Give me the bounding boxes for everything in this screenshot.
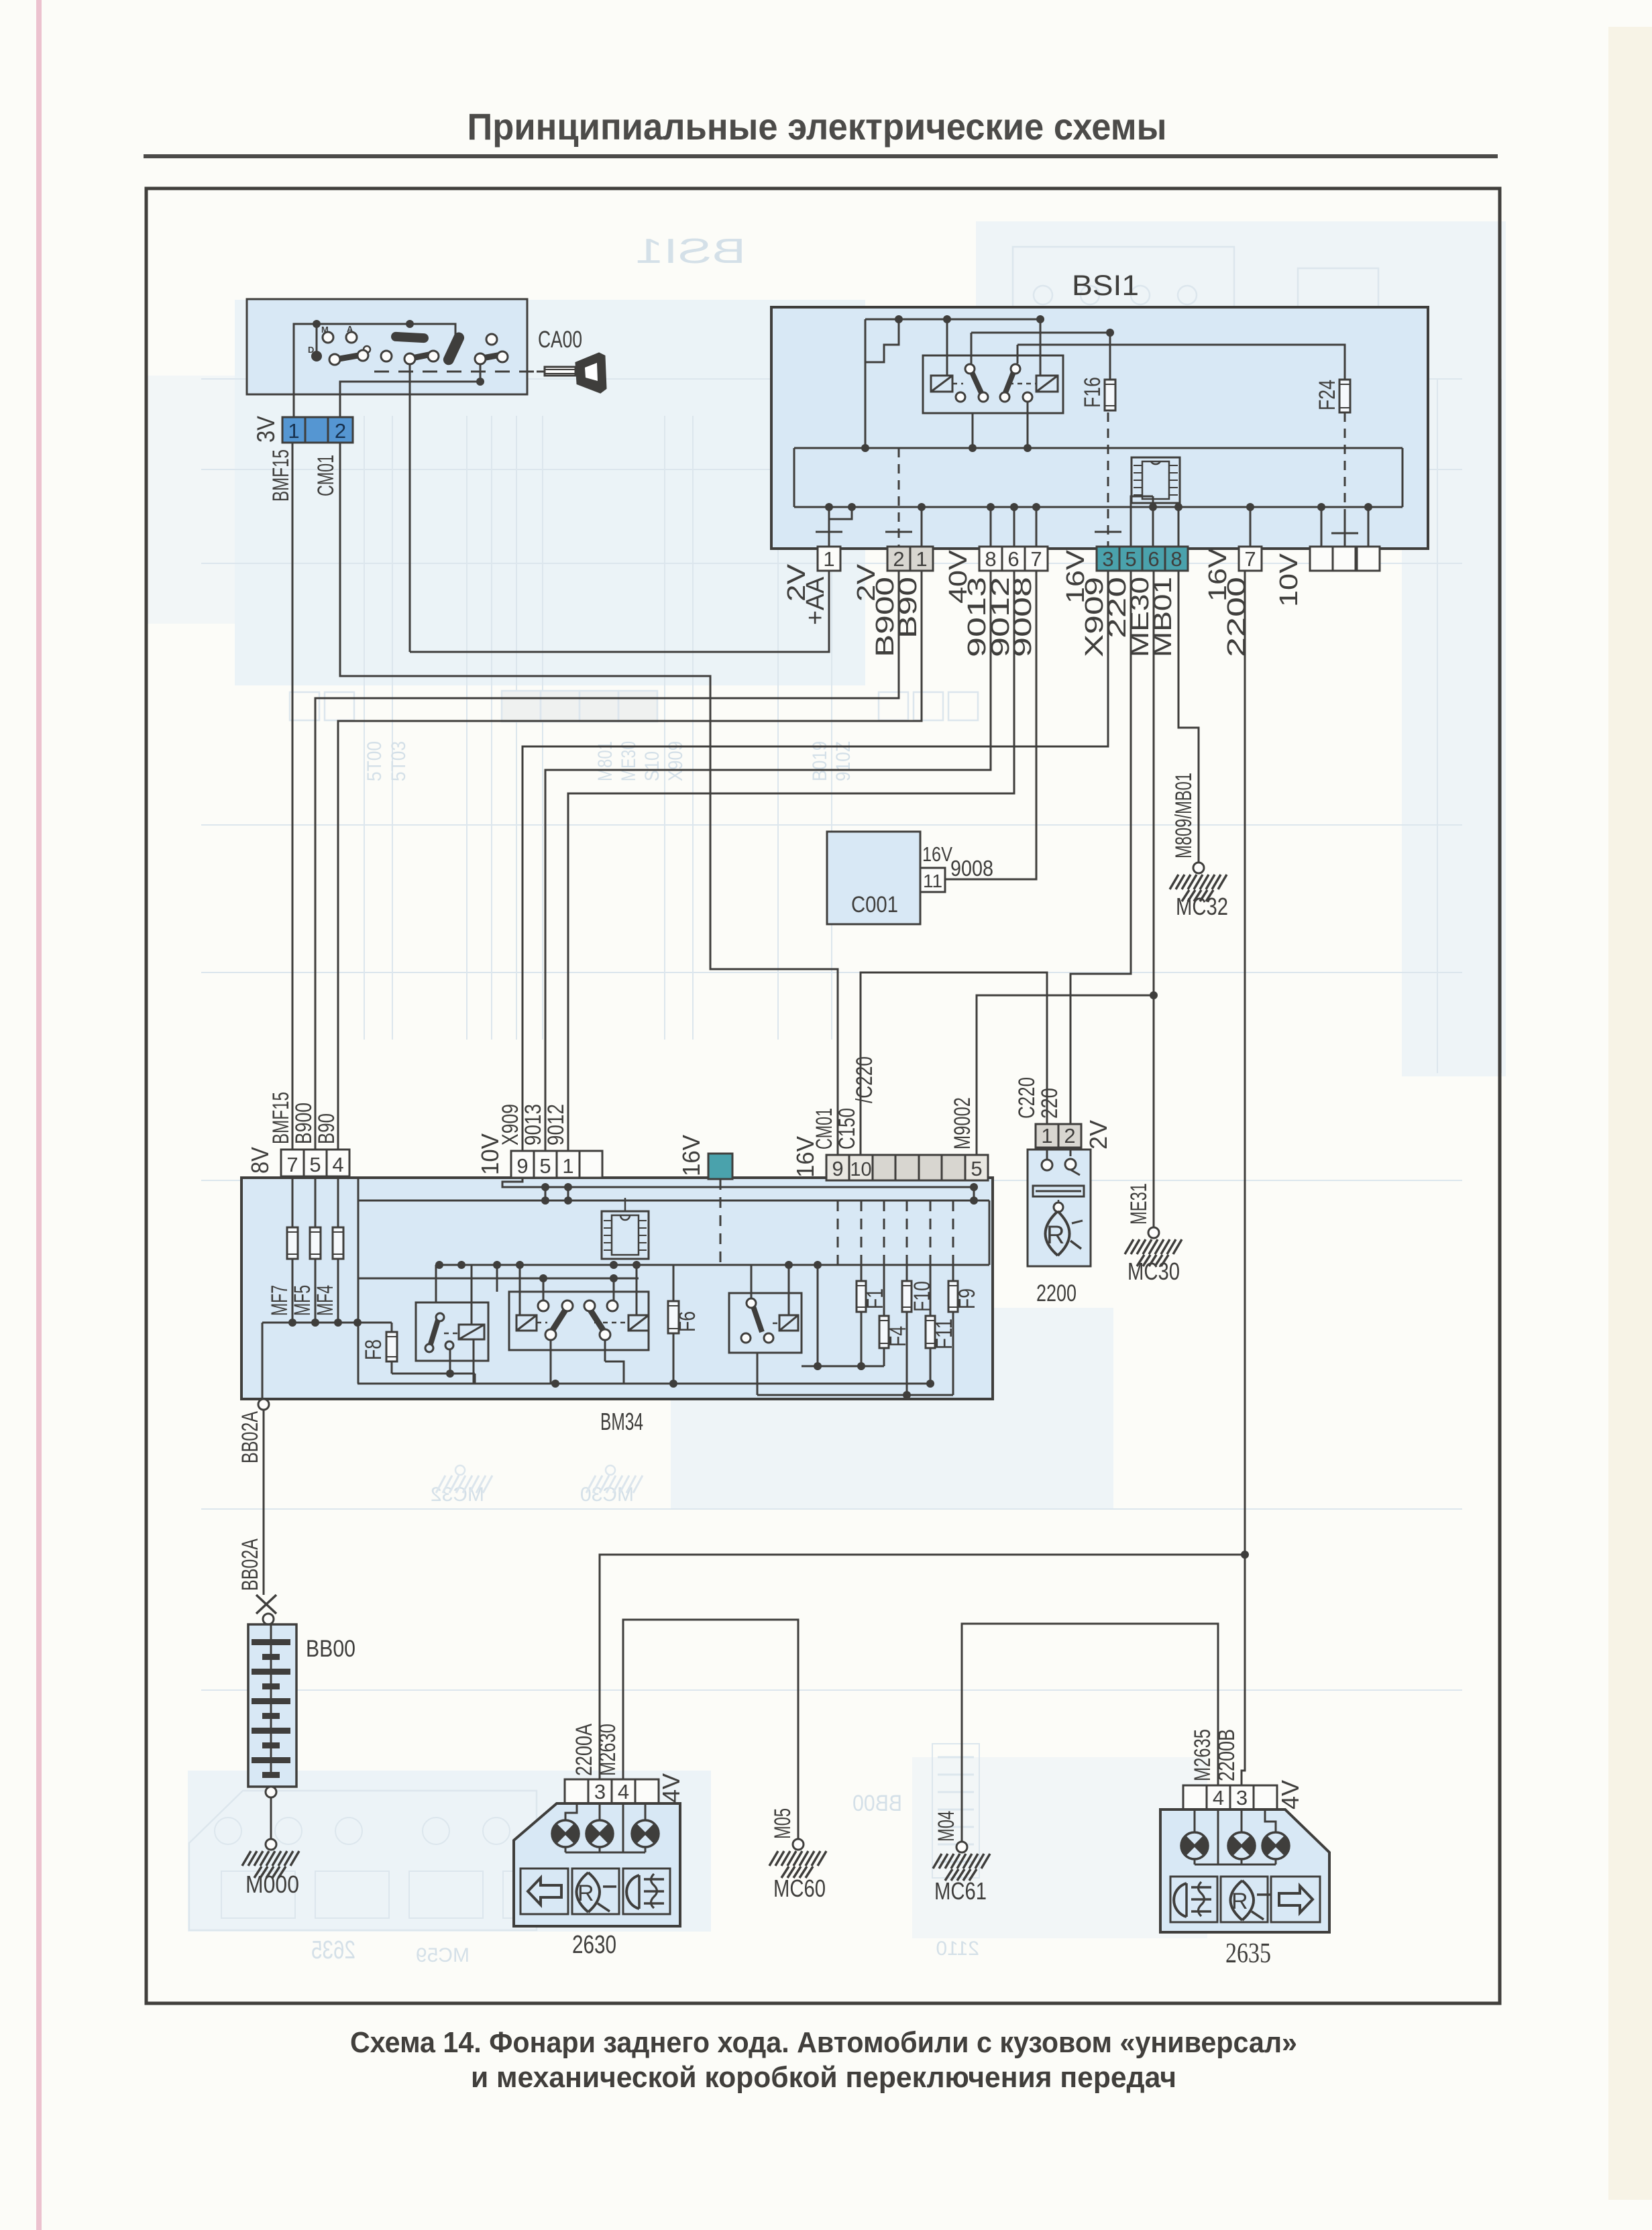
svg-text:7: 7 xyxy=(1244,547,1256,571)
svg-text:1: 1 xyxy=(916,547,927,571)
svg-text:BSI1: BSI1 xyxy=(1072,270,1139,302)
svg-text:BSI1: BSI1 xyxy=(635,232,746,271)
svg-text:CM01: CM01 xyxy=(812,1108,837,1150)
svg-text:B900: B900 xyxy=(291,1103,317,1144)
svg-text:1: 1 xyxy=(288,419,299,443)
svg-text:MC60: MC60 xyxy=(773,1875,826,1902)
svg-text:F16: F16 xyxy=(1080,377,1105,408)
svg-text:3: 3 xyxy=(1102,547,1113,571)
svg-text:+AA: +AA xyxy=(802,576,830,625)
svg-text:MC32: MC32 xyxy=(1176,893,1228,920)
svg-text:2635: 2635 xyxy=(1225,1938,1271,1969)
svg-text:MF4: MF4 xyxy=(313,1285,338,1316)
svg-text:11: 11 xyxy=(923,871,942,891)
svg-text:M809/MB01: M809/MB01 xyxy=(1171,773,1197,858)
svg-text:9008: 9008 xyxy=(950,856,993,881)
svg-text:2110: 2110 xyxy=(936,1938,979,1960)
svg-text:BB02A: BB02A xyxy=(237,1411,263,1463)
svg-text:MC61: MC61 xyxy=(934,1877,987,1905)
svg-text:CA00: CA00 xyxy=(538,327,582,353)
svg-text:220: 220 xyxy=(1037,1088,1062,1119)
svg-text:9008: 9008 xyxy=(1009,577,1037,657)
svg-text:9012: 9012 xyxy=(543,1104,569,1146)
svg-text:2200B: 2200B xyxy=(1214,1729,1240,1781)
svg-text:M04: M04 xyxy=(934,1811,959,1842)
svg-text:5T03: 5T03 xyxy=(388,741,410,781)
svg-text:4V: 4V xyxy=(657,1773,685,1803)
svg-text:BB00: BB00 xyxy=(852,1791,902,1816)
svg-text:9: 9 xyxy=(832,1157,843,1180)
svg-text:6: 6 xyxy=(1148,547,1159,571)
svg-text:ME31: ME31 xyxy=(1126,1183,1152,1225)
svg-text:BB02A: BB02A xyxy=(237,1539,263,1591)
svg-text:R: R xyxy=(577,1881,594,1906)
svg-text:M9002: M9002 xyxy=(950,1097,975,1150)
svg-text:M: M xyxy=(321,325,329,335)
svg-text:2: 2 xyxy=(335,419,346,443)
svg-text:M000: M000 xyxy=(245,1871,299,1898)
svg-text:F24: F24 xyxy=(1315,380,1340,410)
svg-text:BB00: BB00 xyxy=(306,1636,355,1662)
svg-text:и механической коробкой перекл: и механической коробкой переключения пер… xyxy=(471,2061,1176,2094)
svg-text:9: 9 xyxy=(516,1154,528,1178)
svg-text:F9: F9 xyxy=(954,1288,980,1309)
svg-text:1: 1 xyxy=(562,1154,573,1178)
svg-text:BMF15: BMF15 xyxy=(268,1092,294,1144)
svg-text:BM34: BM34 xyxy=(600,1408,643,1435)
svg-text:4V: 4V xyxy=(1276,1780,1304,1809)
svg-text:4: 4 xyxy=(618,1780,629,1803)
svg-text:CM01: CM01 xyxy=(313,455,339,496)
svg-text:S10: S10 xyxy=(641,751,663,781)
svg-text:7: 7 xyxy=(1030,547,1042,571)
svg-text:5: 5 xyxy=(971,1157,982,1180)
svg-text:16V: 16V xyxy=(922,842,952,866)
svg-text:MF7: MF7 xyxy=(267,1285,292,1316)
svg-text:F6: F6 xyxy=(675,1311,700,1332)
svg-text:BMF15: BMF15 xyxy=(268,449,294,502)
svg-text:5: 5 xyxy=(309,1153,321,1176)
svg-text:8: 8 xyxy=(985,547,996,571)
svg-text:2200: 2200 xyxy=(1036,1280,1077,1306)
svg-text:4: 4 xyxy=(332,1153,343,1176)
svg-text:2630: 2630 xyxy=(572,1931,616,1959)
svg-text:8: 8 xyxy=(1170,547,1182,571)
svg-text:2200: 2200 xyxy=(1223,577,1251,657)
svg-text:8V: 8V xyxy=(246,1147,274,1174)
svg-text:2: 2 xyxy=(893,547,904,571)
svg-text:M2630: M2630 xyxy=(595,1724,620,1776)
svg-text:M05: M05 xyxy=(770,1808,795,1839)
svg-text:Принципиальные электрические с: Принципиальные электрические схемы xyxy=(467,105,1167,148)
svg-text:F8: F8 xyxy=(361,1339,386,1360)
svg-text:3: 3 xyxy=(594,1780,606,1803)
svg-text:R: R xyxy=(1231,1889,1248,1914)
svg-text:7: 7 xyxy=(286,1153,298,1176)
svg-text:M2635: M2635 xyxy=(1190,1729,1215,1781)
svg-text:5T00: 5T00 xyxy=(364,741,386,781)
svg-text:A: A xyxy=(347,324,353,334)
svg-text:R: R xyxy=(1046,1221,1064,1249)
svg-text:C220: C220 xyxy=(1014,1077,1040,1119)
svg-text:MC30: MC30 xyxy=(1127,1258,1180,1285)
svg-text:16V: 16V xyxy=(677,1135,705,1176)
svg-text:4: 4 xyxy=(1213,1786,1224,1809)
svg-text:D: D xyxy=(308,345,314,355)
svg-text:B90: B90 xyxy=(314,1113,339,1144)
svg-text:C001: C001 xyxy=(851,892,898,917)
svg-text:9013: 9013 xyxy=(520,1104,546,1146)
svg-text:10: 10 xyxy=(850,1159,871,1180)
svg-text:3: 3 xyxy=(1236,1786,1248,1809)
svg-text:MC30: MC30 xyxy=(580,1484,634,1506)
svg-text:2: 2 xyxy=(1064,1124,1075,1148)
svg-text:/C220: /C220 xyxy=(852,1056,877,1103)
svg-text:MF5: MF5 xyxy=(290,1285,315,1316)
svg-text:10V: 10V xyxy=(1275,553,1303,607)
svg-text:MC59: MC59 xyxy=(416,1944,470,1966)
svg-text:5: 5 xyxy=(539,1154,551,1178)
svg-text:X909: X909 xyxy=(498,1104,523,1146)
svg-text:C150: C150 xyxy=(834,1108,860,1150)
svg-text:Схема 14. Фонари заднего хода.: Схема 14. Фонари заднего хода. Автомобил… xyxy=(350,2026,1297,2059)
svg-text:2V: 2V xyxy=(1085,1120,1112,1150)
svg-text:1: 1 xyxy=(1041,1124,1052,1148)
svg-text:6: 6 xyxy=(1007,547,1019,571)
svg-text:3V: 3V xyxy=(252,416,280,443)
svg-text:1: 1 xyxy=(823,547,834,571)
svg-text:2200A: 2200A xyxy=(571,1724,597,1776)
svg-text:2635: 2635 xyxy=(311,1936,355,1964)
svg-text:5: 5 xyxy=(1125,547,1136,571)
